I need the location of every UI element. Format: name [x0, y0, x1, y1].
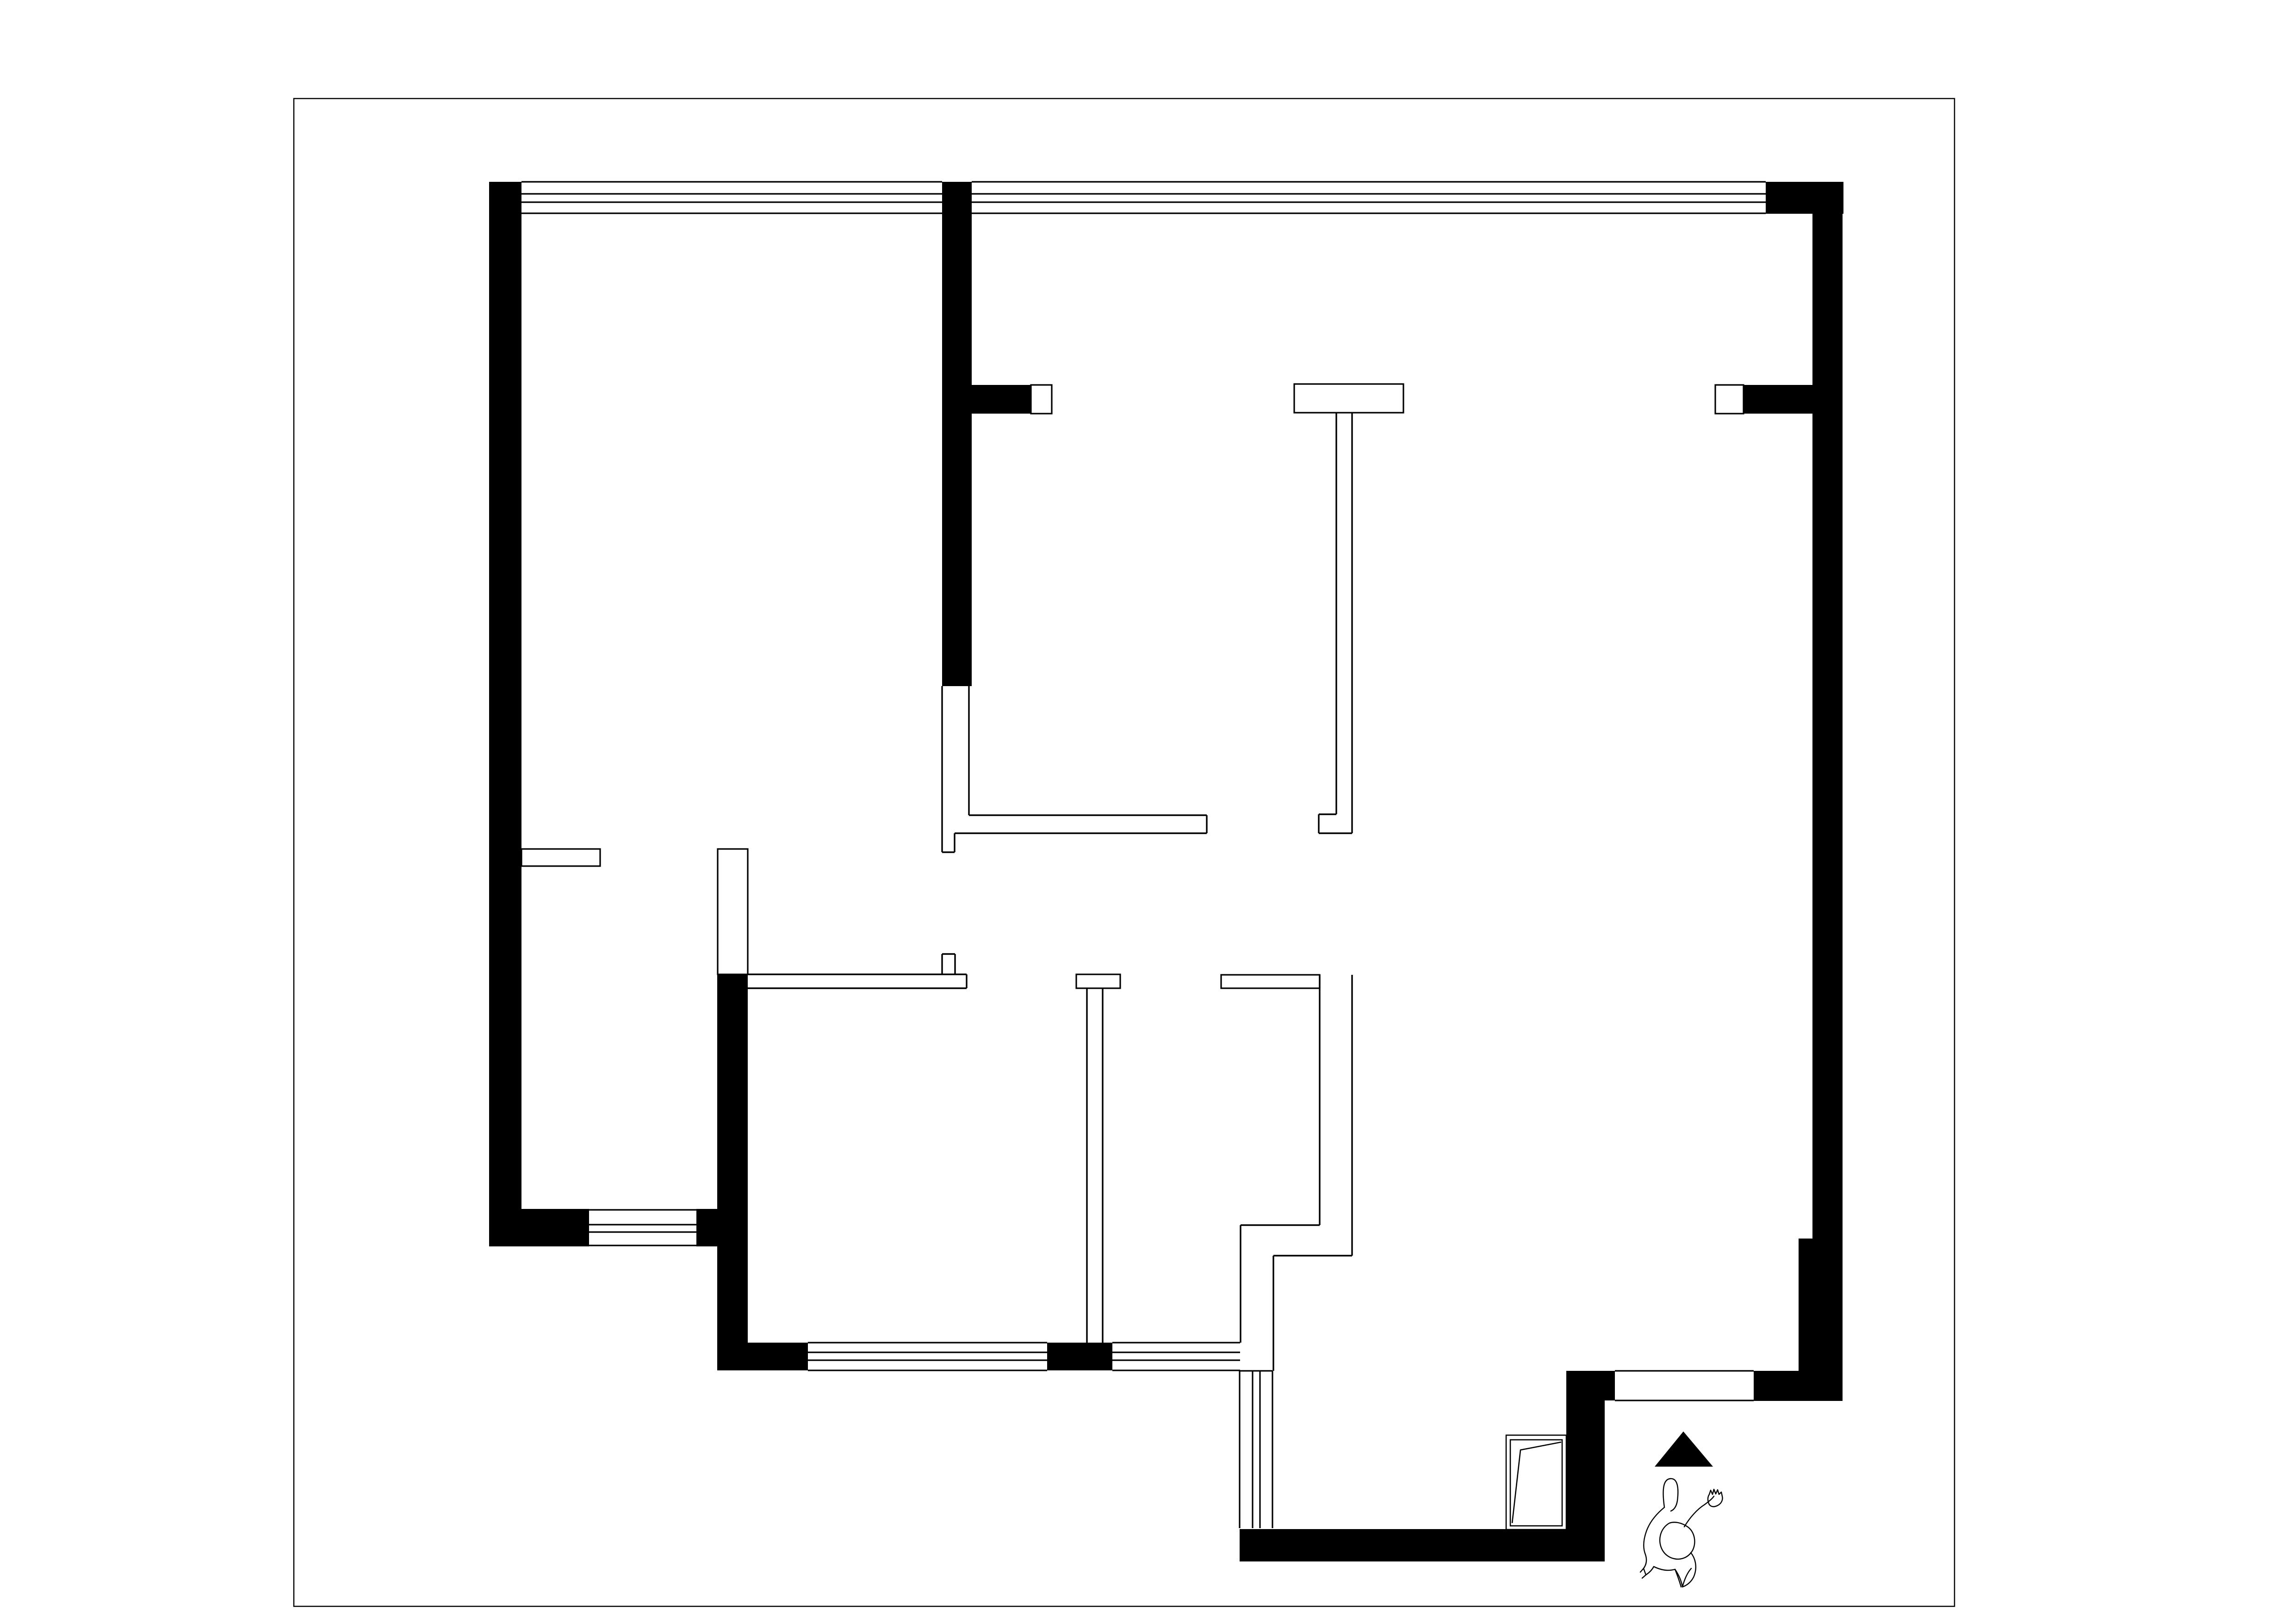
bottom-row-wall-middle [1047, 1343, 1112, 1370]
lower-left-wall-upper-part [718, 849, 748, 974]
entry-door [1506, 1435, 1566, 1530]
mid-partition-bar [1221, 975, 1320, 988]
small-tee-partition-bar [1076, 974, 1120, 988]
floor-plan-canvas [0, 0, 2296, 1623]
left-wall [489, 182, 521, 1209]
hall-door-jamb-box [1031, 385, 1052, 414]
center-left-wall [942, 182, 972, 686]
top-right-corner-block [1766, 182, 1843, 214]
right-wall-upper [1812, 214, 1843, 1239]
bottom-row-wall-left [717, 1343, 808, 1370]
bottom-left-window-jamb [696, 1209, 717, 1246]
bottom-left-corner-wall [489, 1209, 589, 1246]
right-door-jamb-box [1715, 385, 1744, 414]
bottom-right-corner-wall [1754, 1371, 1843, 1401]
page-background [0, 0, 2296, 1623]
center-left-wall-stub [972, 385, 1031, 414]
entry-door-frame [1506, 1435, 1566, 1530]
lower-left-vertical-wall [717, 974, 748, 1370]
right-wall-lower [1799, 1239, 1843, 1371]
right-wall-stub [1744, 385, 1813, 414]
big-tee-partition-bar [1294, 384, 1403, 413]
floor-plan-page [0, 0, 2296, 1623]
left-stub-partition [521, 849, 600, 866]
entry-corner-block [1566, 1371, 1615, 1400]
entry-right-wall [1566, 1400, 1605, 1530]
entry-bottom-wall [1240, 1529, 1605, 1561]
